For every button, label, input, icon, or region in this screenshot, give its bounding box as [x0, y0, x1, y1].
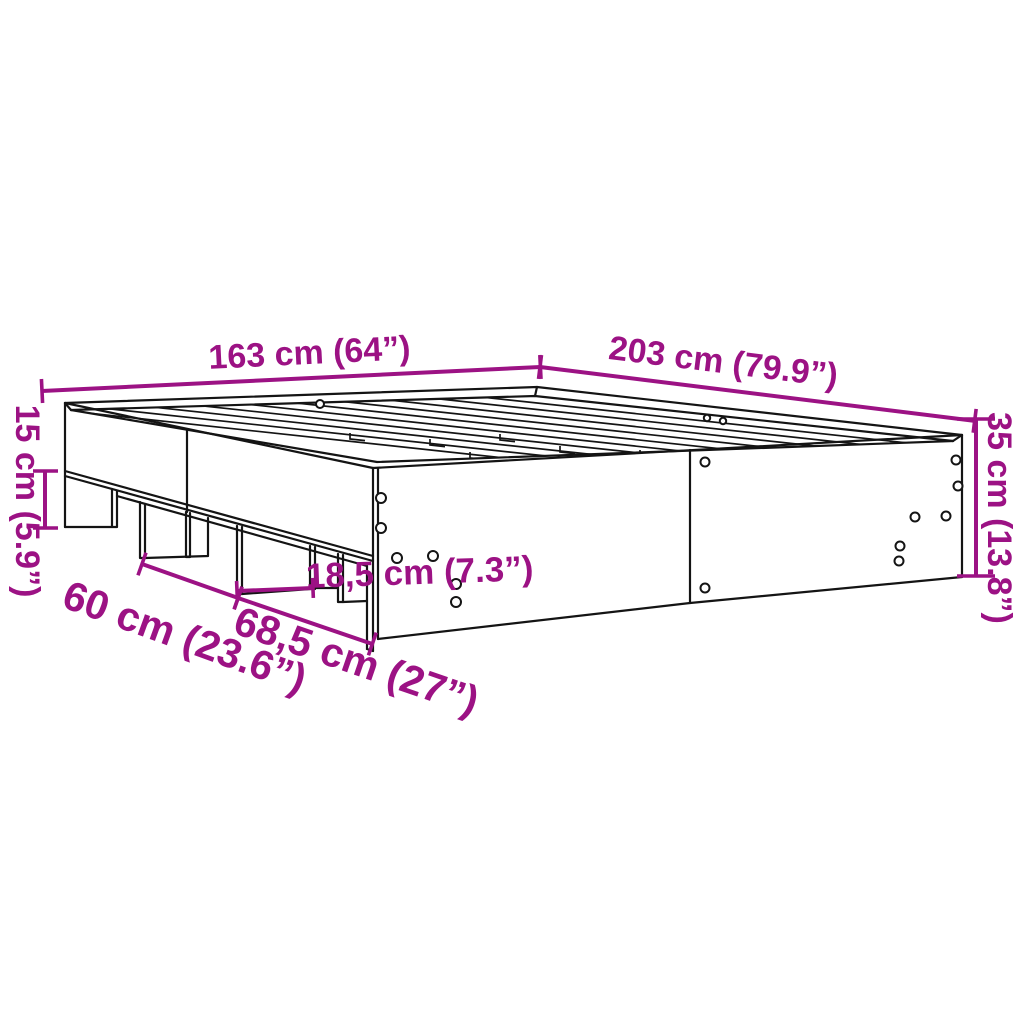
- diagram-canvas: 163 cm (64”) 203 cm (79.9”) 15 cm (5.9”)…: [0, 0, 1024, 1024]
- dimension-leg-width-middle: [237, 578, 314, 601]
- front-rail-top-strip: [71, 410, 953, 462]
- dimension-label-plinth-height-left: 15 cm (5.9”): [8, 405, 46, 598]
- dimension-label-width-top: 163 cm (64”): [208, 329, 412, 377]
- rim-corner-back: [535, 387, 537, 396]
- slat-line: [60, 404, 968, 502]
- dimension-label-leg-width-middle: 18,5 cm (7.3”): [305, 549, 534, 596]
- dimension-label-length-top: 203 cm (79.9”): [607, 329, 841, 395]
- dimension-label-frame-height-right: 35 cm (13.8”): [980, 412, 1018, 624]
- bed-frame-drawing: [60, 352, 968, 652]
- bed-frame-diagram: 163 cm (64”) 203 cm (79.9”) 15 cm (5.9”)…: [0, 0, 1024, 1024]
